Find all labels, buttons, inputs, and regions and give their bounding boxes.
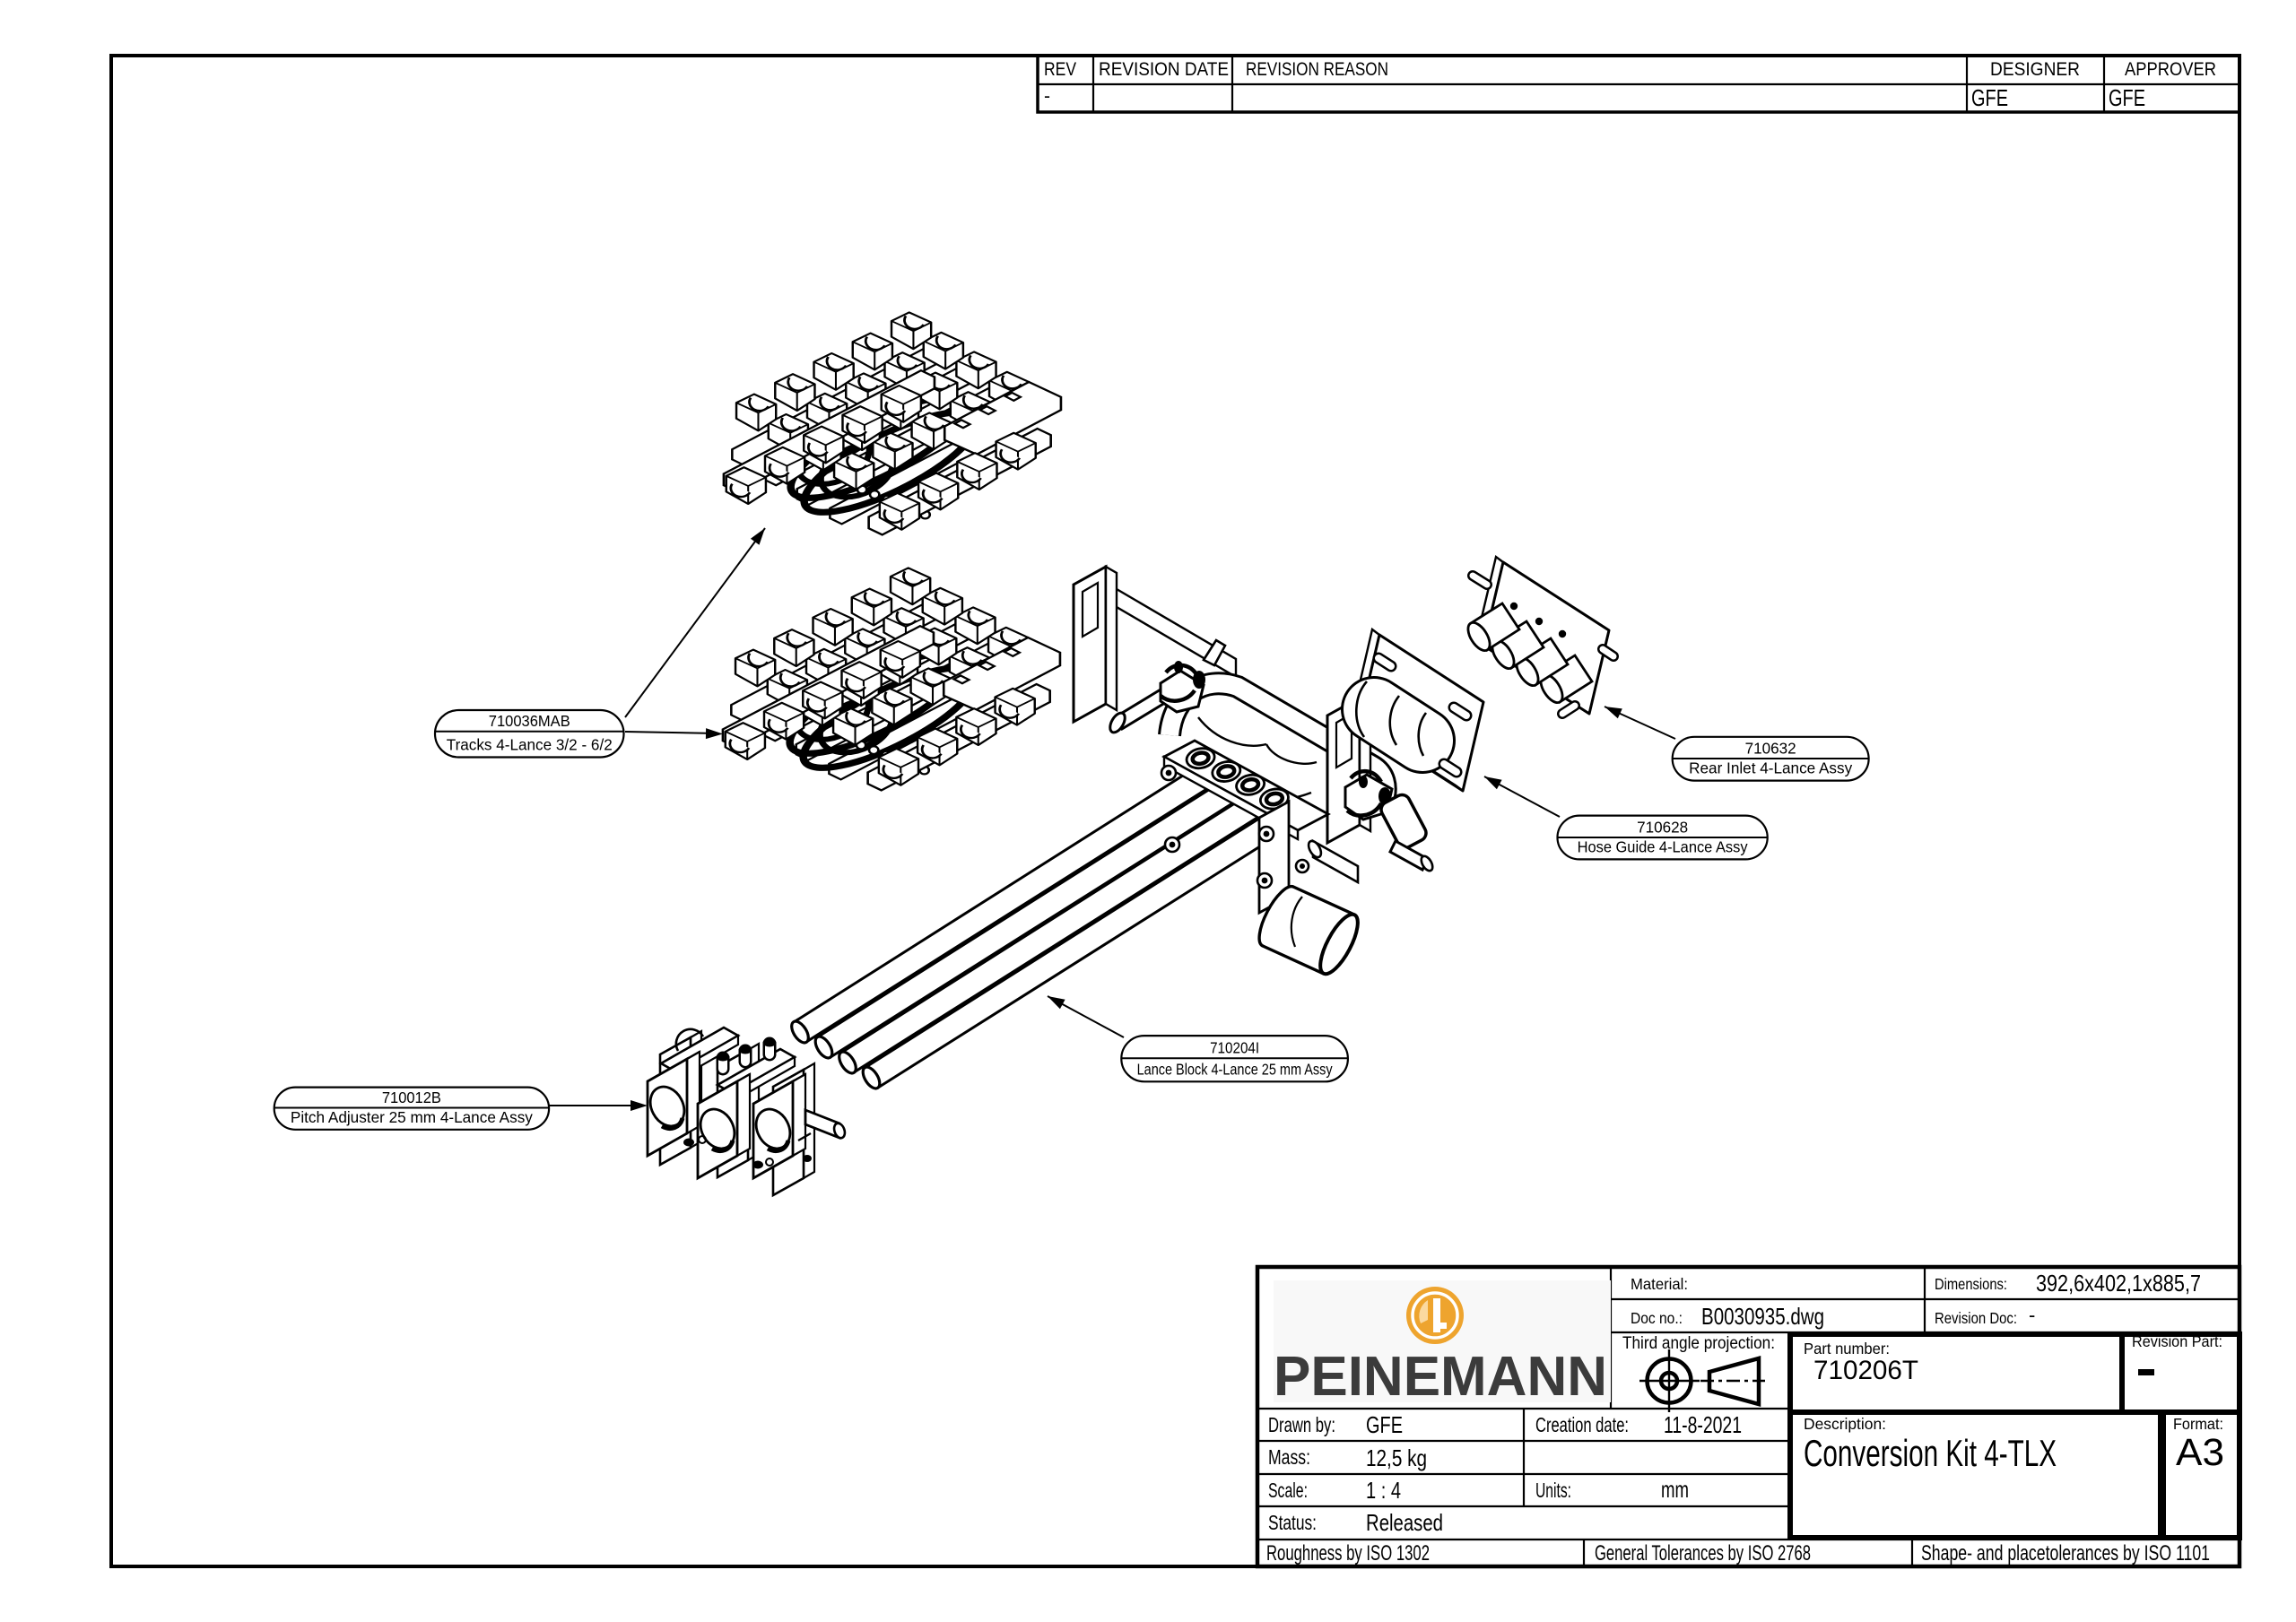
- svg-text:Tracks 4-Lance 3/2 - 6/2: Tracks 4-Lance 3/2 - 6/2: [447, 736, 613, 754]
- svg-text:Status:: Status:: [1268, 1511, 1317, 1534]
- svg-text:710206T: 710206T: [1813, 1356, 1918, 1385]
- svg-text:Format:: Format:: [2173, 1415, 2223, 1433]
- svg-text:Lance Block 4-Lance 25 mm Assy: Lance Block 4-Lance 25 mm Assy: [1137, 1060, 1333, 1078]
- svg-text:Third angle projection:: Third angle projection:: [1622, 1334, 1775, 1353]
- svg-text:Roughness by ISO 1302: Roughness by ISO 1302: [1266, 1541, 1430, 1566]
- svg-text:A3: A3: [2176, 1431, 2224, 1474]
- svg-text:Dimensions:: Dimensions:: [1935, 1275, 2007, 1293]
- svg-text:PEINEMANN: PEINEMANN: [1274, 1346, 1607, 1408]
- svg-text:B0030935.dwg: B0030935.dwg: [1701, 1303, 1824, 1330]
- svg-text:APPROVER: APPROVER: [2125, 59, 2216, 80]
- svg-text:Drawn by:: Drawn by:: [1268, 1413, 1335, 1436]
- svg-text:Shape- and placetolerances by: Shape- and placetolerances by ISO 1101: [1921, 1541, 2210, 1566]
- svg-text:-: -: [1044, 86, 1050, 107]
- svg-text:1 : 4: 1 : 4: [1366, 1477, 1401, 1504]
- svg-text:Conversion Kit 4-TLX: Conversion Kit 4-TLX: [1804, 1432, 2057, 1474]
- svg-text:REVISION REASON: REVISION REASON: [1246, 59, 1388, 80]
- svg-text:mm: mm: [1661, 1476, 1689, 1503]
- svg-text:Revision Part:: Revision Part:: [2132, 1332, 2222, 1350]
- svg-text:GFE: GFE: [1366, 1411, 1403, 1438]
- svg-text:Description:: Description:: [1804, 1415, 1886, 1433]
- svg-text:12,5 kg: 12,5 kg: [1366, 1444, 1427, 1471]
- svg-text:Pitch Adjuster 25 mm 4-Lance A: Pitch Adjuster 25 mm 4-Lance Assy: [291, 1108, 533, 1126]
- svg-text:710012B: 710012B: [382, 1089, 441, 1106]
- svg-text:392,6x402,1x885,7: 392,6x402,1x885,7: [2036, 1270, 2201, 1297]
- svg-text:Revision Doc:: Revision Doc:: [1935, 1309, 2017, 1327]
- svg-text:GFE: GFE: [2109, 84, 2145, 111]
- svg-text:Part number:: Part number:: [1804, 1340, 1890, 1357]
- svg-text:General Tolerances by ISO 2768: General Tolerances by ISO 2768: [1595, 1541, 1811, 1566]
- svg-text:Scale:: Scale:: [1268, 1479, 1308, 1502]
- svg-text:Mass:: Mass:: [1268, 1445, 1310, 1469]
- svg-text:Doc no.:: Doc no.:: [1631, 1309, 1683, 1327]
- svg-text:11-8-2021: 11-8-2021: [1664, 1411, 1742, 1438]
- svg-text:GFE: GFE: [1971, 84, 2008, 111]
- svg-text:710036MAB: 710036MAB: [489, 712, 570, 730]
- svg-text:710632: 710632: [1745, 740, 1796, 758]
- svg-text:Creation date:: Creation date:: [1535, 1413, 1629, 1436]
- svg-text:Released: Released: [1366, 1509, 1443, 1536]
- svg-text:Hose Guide 4-Lance Assy: Hose Guide 4-Lance Assy: [1578, 837, 1748, 855]
- svg-text:Material:: Material:: [1631, 1275, 1688, 1293]
- svg-text:710628: 710628: [1637, 819, 1688, 837]
- svg-text:Units:: Units:: [1535, 1479, 1571, 1502]
- svg-text:REVISION DATE: REVISION DATE: [1099, 59, 1229, 80]
- svg-text:-: -: [2029, 1304, 2035, 1326]
- svg-text:REV: REV: [1044, 59, 1076, 80]
- svg-text:710204I: 710204I: [1210, 1039, 1259, 1057]
- svg-text:DESIGNER: DESIGNER: [1990, 59, 2080, 80]
- svg-text:Rear Inlet 4-Lance Assy: Rear Inlet 4-Lance Assy: [1689, 759, 1852, 777]
